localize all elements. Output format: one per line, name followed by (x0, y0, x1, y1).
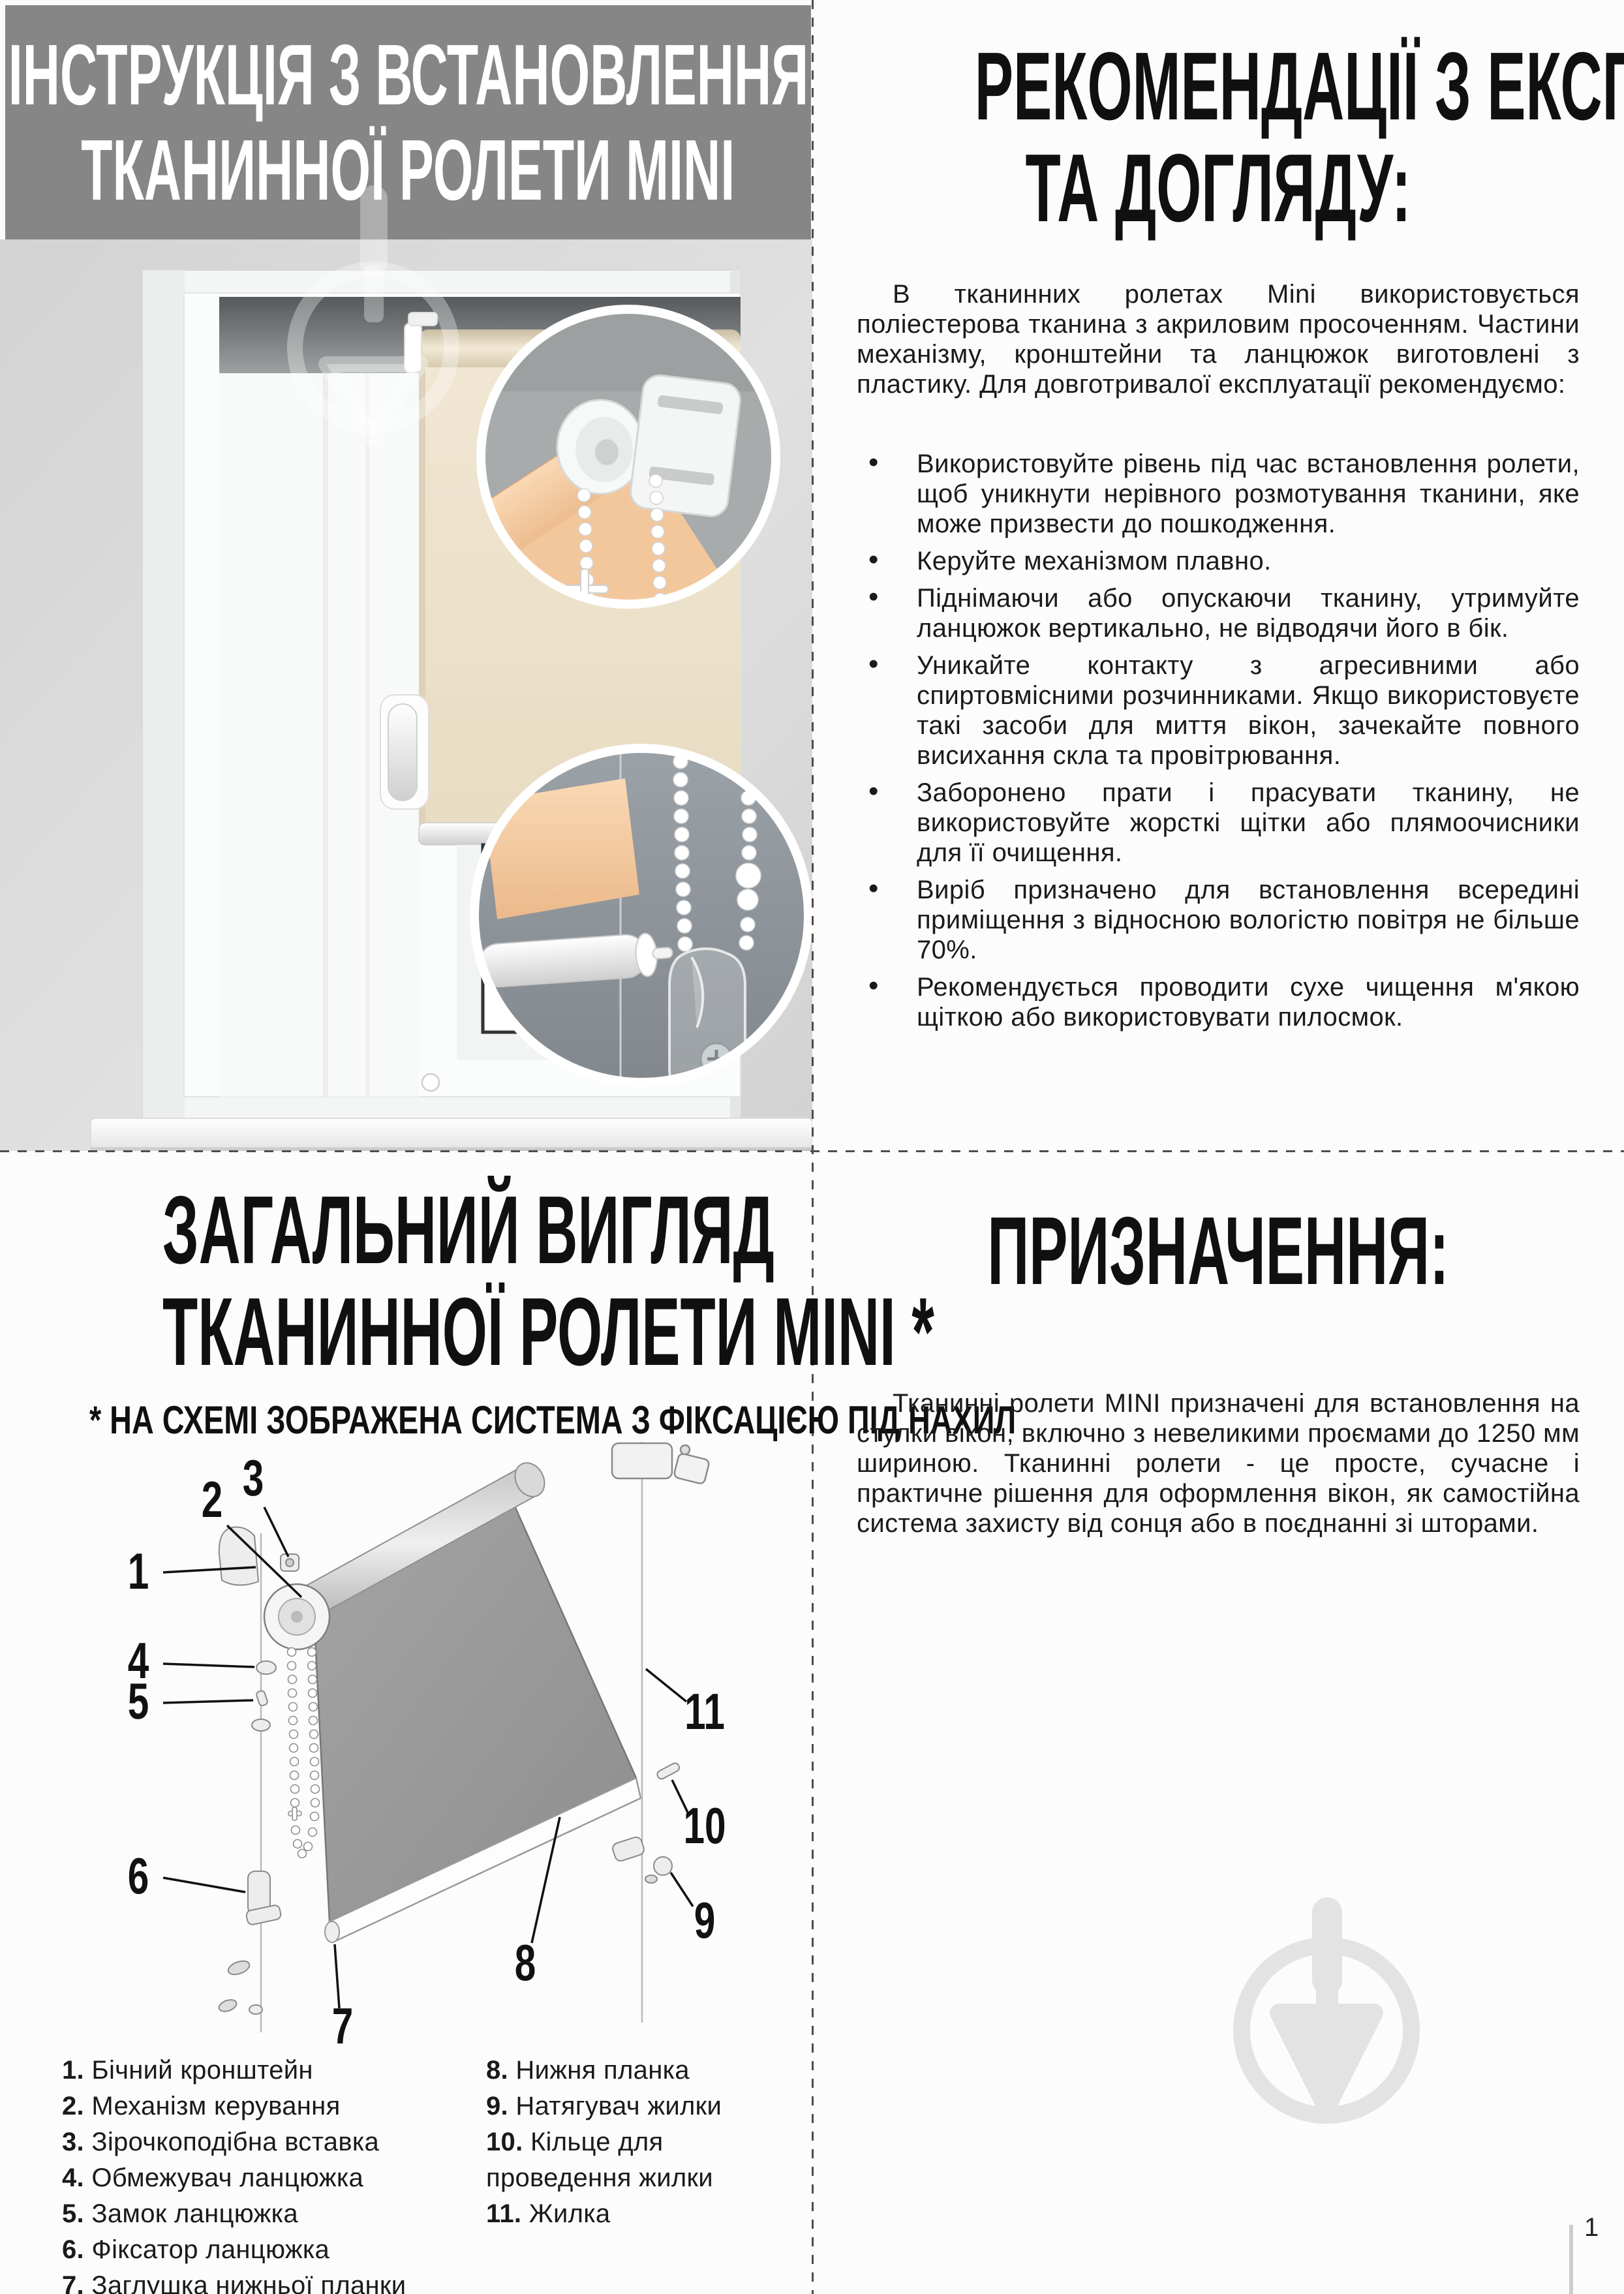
legend-item: 6. Фіксатор ланцюжка (62, 2232, 486, 2268)
bead-chain (288, 1648, 320, 1858)
callout-1: 1 (128, 1543, 149, 1600)
purpose-body: Тканинні ролети MINI призначені для вста… (857, 1388, 1580, 1538)
overview-subtitle: * НА СХЕМІ ЗОБРАЖЕНА СИСТЕМА З ФІКСАЦІЄЮ… (89, 1398, 723, 1443)
watermark-logo-icon (1217, 1892, 1439, 2140)
top-bracket (612, 1443, 710, 1484)
list-item: • Керуйте механізмом плавно. (857, 546, 1580, 576)
care-bullet-list: • Використовуйте рівень під час встановл… (857, 449, 1580, 1039)
callout-10: 10 (683, 1797, 726, 1854)
list-item: • Рекомендується проводити сухе чищення … (857, 972, 1580, 1032)
callout-3: 3 (243, 1450, 264, 1506)
legend-right-column: 8. Нижня планка 9. Натягувач жилки 10. К… (486, 2053, 812, 2232)
instruction-page: ІНСТРУКЦІЯ З ВСТАНОВЛЕННЯ ТКАНИННОЇ РОЛЕ… (0, 0, 1624, 2294)
care-section-title: РЕКОМЕНДАЦІЇ З ЕКСПЛУАТАЦІЇ ТА ДОГЛЯДУ: (812, 36, 1624, 239)
callout-11: 11 (684, 1683, 725, 1740)
overview-title-line2: ТКАНИННОЇ РОЛЕТИ MINI * (162, 1281, 650, 1383)
care-intro-text: В тканинних ролетах Mini використовуєтьс… (857, 279, 1580, 399)
header-title-line1: ІНСТРУКЦІЯ З ВСТАНОВЛЕННЯ (8, 30, 808, 120)
care-intro: В тканинних ролетах Mini використовуєтьс… (857, 279, 1580, 399)
page-number: 1 (1584, 2213, 1599, 2242)
bullet-icon: • (868, 545, 879, 575)
care-title-line1: РЕКОМЕНДАЦІЇ З ЕКСПЛУАТАЦІЇ (975, 36, 1462, 138)
bullet-icon: • (868, 448, 879, 478)
list-item: • Виріб призначено для встановлення всер… (857, 875, 1580, 965)
bullet-icon: • (868, 649, 879, 679)
legend-left-column: 1. Бічний кронштейн 2. Механізм керуванн… (62, 2053, 486, 2294)
purpose-text: Тканинні ролети MINI призначені для вста… (857, 1388, 1580, 1538)
chain-guide-knob (422, 1074, 439, 1091)
legend-item: 4. Обмежувач ланцюжка (62, 2160, 486, 2196)
legend-item: 1. Бічний кронштейн (62, 2053, 486, 2088)
callout-9: 9 (694, 1892, 716, 1949)
list-item: • Піднімаючи або опускаючи тканину, утри… (857, 583, 1580, 643)
watermark-logo-icon (269, 181, 484, 455)
legend-item: 10. Кільце для проведення жилки (486, 2124, 812, 2196)
list-item: • Використовуйте рівень під час встановл… (857, 449, 1580, 539)
legend-item: 2. Механізм керування (62, 2088, 486, 2124)
window-sill (91, 1118, 812, 1151)
purpose-title: ПРИЗНАЧЕННЯ: (975, 1201, 1462, 1302)
overview-title-line1: ЗАГАЛЬНИЙ ВИГЛЯД (162, 1180, 650, 1281)
legend-item: 9. Натягувач жилки (486, 2088, 812, 2124)
callout-7: 7 (332, 1998, 354, 2049)
footer-bar (1569, 2225, 1573, 2294)
horizontal-cut-line (0, 1150, 1624, 1152)
bullet-icon: • (868, 582, 879, 612)
callout-8: 8 (515, 1935, 536, 1991)
legend-item: 7. Заглушка нижньої планки (62, 2268, 486, 2294)
callout-2: 2 (202, 1471, 223, 1528)
legend-item: 11. Жилка (486, 2196, 812, 2232)
list-item: • Заборонено прати і прасувати тканину, … (857, 778, 1580, 868)
bullet-icon: • (868, 874, 879, 904)
care-title-line2: ТА ДОГЛЯДУ: (975, 138, 1462, 239)
bullet-icon: • (868, 776, 879, 806)
overview-section-title: ЗАГАЛЬНИЙ ВИГЛЯД ТКАНИННОЇ РОЛЕТИ MINI *… (0, 1180, 812, 1443)
legend-item: 5. Замок ланцюжка (62, 2196, 486, 2232)
bottom-bar-cap (325, 1921, 339, 1942)
legend-item: 3. Зірочкоподібна вставка (62, 2124, 486, 2160)
legend-item: 8. Нижня планка (486, 2053, 812, 2088)
purpose-section-title: ПРИЗНАЧЕННЯ: (812, 1201, 1624, 1302)
window-handle (380, 695, 429, 809)
list-item: • Уникайте контакту з агресивними або сп… (857, 650, 1580, 771)
callout-5: 5 (128, 1673, 149, 1730)
bullet-icon: • (868, 971, 879, 1001)
callout-6: 6 (128, 1848, 149, 1904)
exploded-diagram: 1 2 3 4 5 6 7 8 9 10 11 (0, 1442, 812, 2049)
